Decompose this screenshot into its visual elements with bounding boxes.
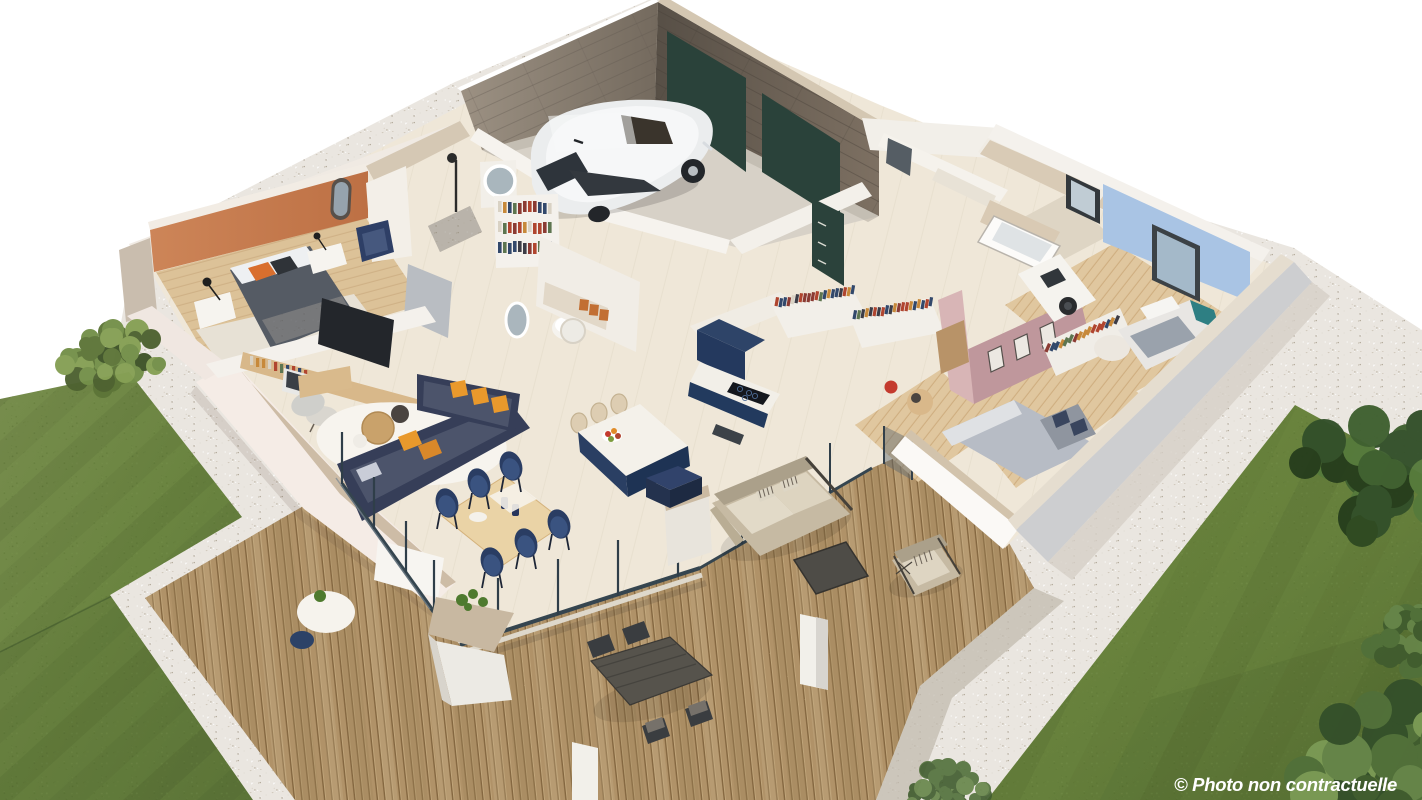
svg-text:© Photo non contractuelle: © Photo non contractuelle	[1174, 774, 1397, 795]
